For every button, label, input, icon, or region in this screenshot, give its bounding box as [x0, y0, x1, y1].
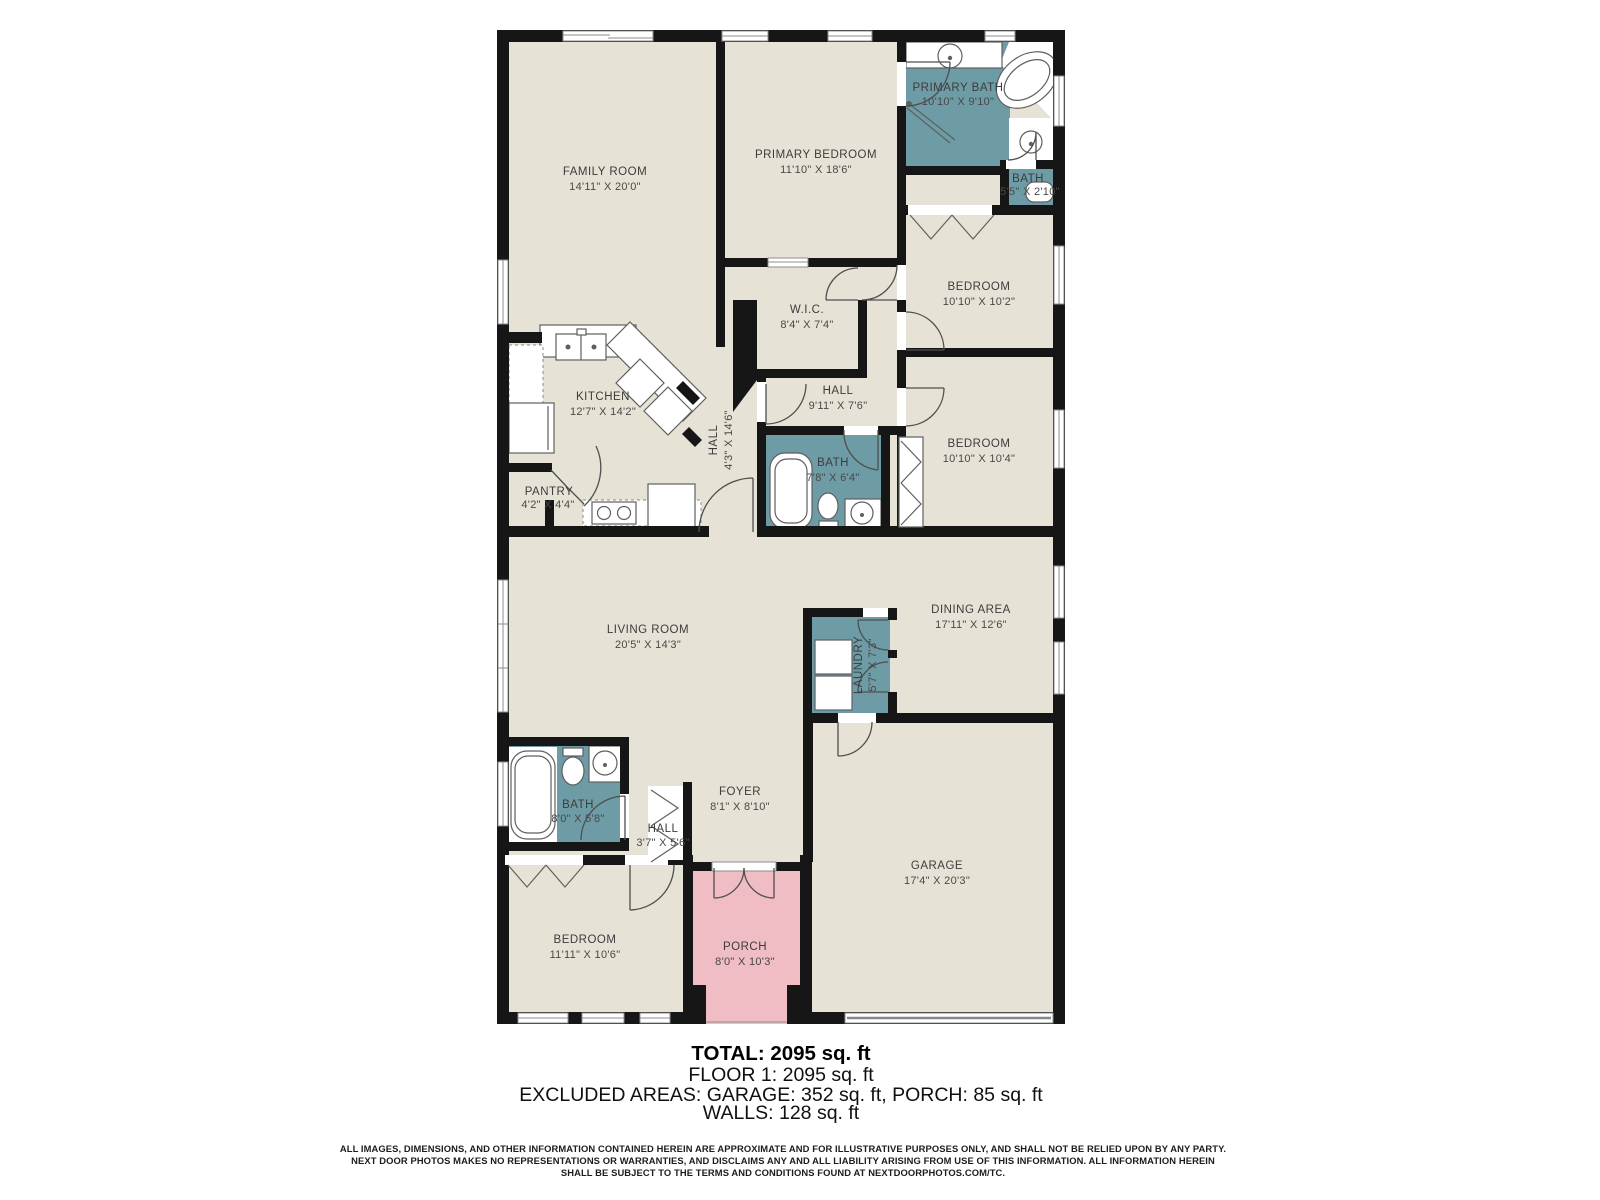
floorplan-page: FAMILY ROOM 14'11" X 20'0" PRIMARY BEDRO… — [0, 0, 1600, 1200]
room-label: FOYER — [719, 786, 761, 798]
fridge-icon — [509, 403, 554, 453]
room-dims: 11'10" X 18'6" — [780, 164, 852, 176]
room-label: W.I.C. — [790, 304, 824, 316]
disclaimer-block: ALL IMAGES, DIMENSIONS, AND OTHER INFORM… — [340, 1143, 1226, 1178]
room-label: LIVING ROOM — [607, 624, 689, 636]
room-dims: 17'4" X 20'3" — [904, 875, 970, 887]
room-label: HALL — [648, 823, 679, 835]
room-label: BATH — [817, 457, 849, 469]
room-dims: 14'11" X 20'0" — [569, 181, 641, 193]
stove-icon — [592, 502, 636, 524]
toilet-icon — [818, 493, 838, 519]
room-label: HALL — [708, 425, 720, 456]
room-dims: 4'2" X 4'4" — [521, 499, 574, 511]
disclaimer-line: SHALL BE SUBJECT TO THE TERMS AND CONDIT… — [561, 1167, 1005, 1178]
room-label: FAMILY ROOM — [563, 166, 647, 178]
room-label: DINING AREA — [931, 604, 1011, 616]
room-label: HALL — [823, 385, 854, 397]
toilet-icon — [562, 757, 584, 785]
room-label: LAUNDRY — [853, 636, 865, 694]
room-dims: 7'8" X 6'4" — [806, 472, 859, 484]
floorplan-svg: FAMILY ROOM 14'11" X 20'0" PRIMARY BEDRO… — [0, 0, 1600, 1200]
tub-icon — [511, 751, 555, 839]
room-dims: 10'10" X 10'2" — [943, 296, 1015, 308]
room-label: KITCHEN — [576, 391, 630, 403]
room-label: GARAGE — [911, 860, 963, 872]
room-label: BATH — [562, 799, 594, 811]
vanity-counter — [906, 42, 1002, 68]
room-label: BATH — [1012, 173, 1044, 185]
dryer-icon — [815, 676, 852, 710]
room-dims: 10'10" X 9'10" — [922, 96, 994, 108]
summary-block: TOTAL: 2095 sq. ft FLOOR 1: 2095 sq. ft … — [519, 1042, 1043, 1124]
washer-icon — [815, 640, 852, 674]
room-dims: 8'1" X 8'10" — [710, 801, 770, 813]
room-dims: 4'3" X 14'6" — [723, 410, 735, 470]
room-label: PANTRY — [525, 486, 574, 498]
room-dims: 8'0" X 10'3" — [715, 956, 775, 968]
room-label: PRIMARY BEDROOM — [755, 149, 877, 161]
summary-floor: FLOOR 1: 2095 sq. ft — [688, 1064, 874, 1086]
room-dims: 3'7" X 5'6" — [636, 837, 689, 849]
room-dims: 12'7" X 14'2" — [570, 406, 636, 418]
room-label: PRIMARY BATH — [913, 82, 1004, 94]
room-dims: 5'5" X 2'10" — [1000, 186, 1060, 198]
window — [563, 31, 653, 41]
room-label: BEDROOM — [948, 281, 1011, 293]
room-label: PORCH — [723, 941, 767, 953]
room-label: BEDROOM — [948, 438, 1011, 450]
summary-total: TOTAL: 2095 sq. ft — [691, 1042, 870, 1065]
room-dims: 20'5" X 14'3" — [615, 639, 681, 651]
room-dims: 10'10" X 10'4" — [943, 453, 1015, 465]
summary-walls: WALLS: 128 sq. ft — [703, 1102, 860, 1124]
room-dims: 8'4" X 7'4" — [780, 319, 833, 331]
room-dims: 17'11" X 12'6" — [935, 619, 1007, 631]
kitchen-cabinet — [648, 484, 695, 532]
disclaimer-line: NEXT DOOR PHOTOS MAKES NO REPRESENTATION… — [351, 1155, 1215, 1166]
room-dims: 5'7" X 7'3" — [867, 638, 879, 691]
room-dims: 8'0" X 5'8" — [551, 813, 604, 825]
kitchen-cabinet — [509, 345, 543, 403]
room-dims: 9'11" X 7'6" — [809, 400, 868, 412]
disclaimer-line: ALL IMAGES, DIMENSIONS, AND OTHER INFORM… — [340, 1143, 1226, 1154]
room-label: BEDROOM — [554, 934, 617, 946]
room-dims: 11'11" X 10'6" — [550, 949, 621, 961]
